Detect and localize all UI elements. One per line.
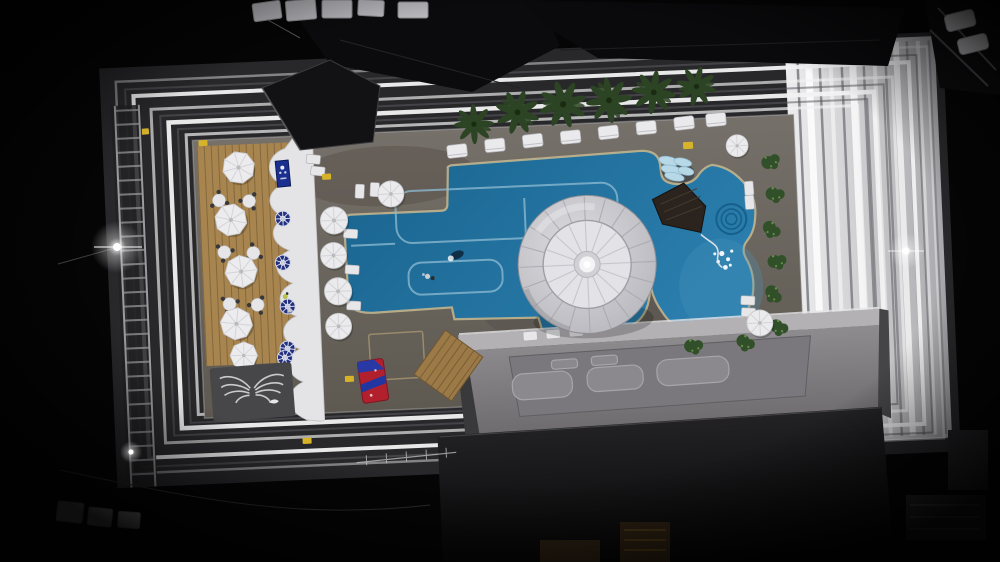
night-vignette — [0, 0, 1000, 562]
scene-svg — [0, 0, 1000, 562]
aerial-photo-rooftop-pool — [0, 0, 1000, 562]
